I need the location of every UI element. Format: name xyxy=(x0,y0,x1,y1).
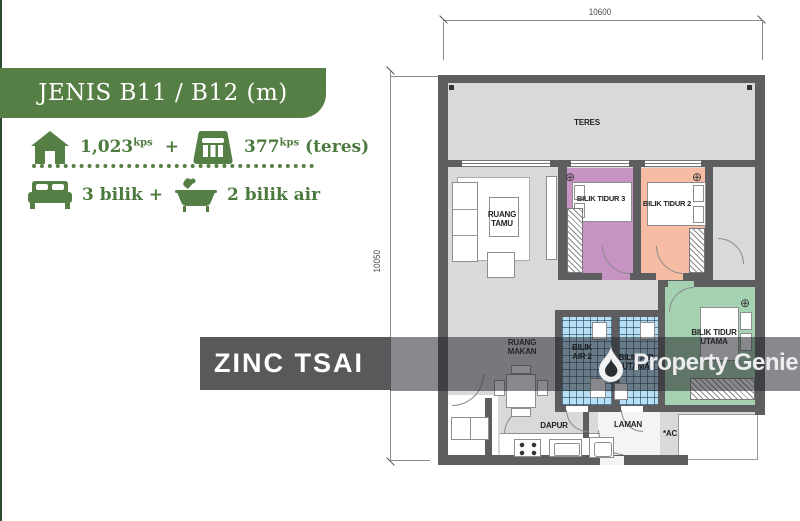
property-genie-watermark: Property Genie xyxy=(390,337,800,391)
ac-ledge xyxy=(678,414,758,460)
window xyxy=(571,160,629,167)
tv-console xyxy=(546,176,557,260)
label-bilik-tidur-2: BILIK TIDUR 2 xyxy=(643,200,691,209)
wall-segment xyxy=(658,405,755,412)
washing-machine xyxy=(589,437,614,458)
label-bilik-tidur-3: BILIK TIDUR 3 xyxy=(577,195,625,204)
store-shelf xyxy=(451,417,489,440)
fan-symbol-icon: ⊕ xyxy=(740,297,750,309)
fan-symbol-icon: ⊕ xyxy=(565,171,575,183)
label-dapur: DAPUR xyxy=(540,421,567,430)
armchair xyxy=(487,252,515,278)
floor-plan: 10600 10050 xyxy=(0,0,800,521)
property-genie-text: Property Genie xyxy=(633,349,798,377)
wall-post xyxy=(747,85,752,90)
label-teres: TERES xyxy=(574,118,600,127)
wall-segment xyxy=(438,75,448,465)
stove xyxy=(514,439,541,457)
wall-segment xyxy=(633,160,641,280)
window xyxy=(645,160,701,167)
page: JENIS B11 / B12 (m) 1,023kps + 377kps (t… xyxy=(0,0,800,521)
fan-symbol-icon: ⊕ xyxy=(692,171,702,183)
dimension-label-top: 10600 xyxy=(589,7,611,18)
zinc-tsai-watermark: ZINC TSAI xyxy=(200,337,390,390)
wall-post xyxy=(449,85,454,90)
dimension-line-top xyxy=(443,20,762,21)
door-gap xyxy=(668,281,694,287)
property-genie-logo-icon xyxy=(597,344,625,384)
wardrobe xyxy=(567,208,583,273)
door-gap xyxy=(602,273,630,280)
label-ac: *AC xyxy=(663,429,677,438)
wardrobe xyxy=(689,228,705,273)
label-ruang-tamu: RUANGTAMU xyxy=(488,210,516,228)
sofa xyxy=(452,182,478,262)
extension-line xyxy=(762,22,763,60)
dining-chair xyxy=(511,408,531,417)
wall-segment xyxy=(555,310,665,317)
extension-line xyxy=(390,76,438,77)
zinc-tsai-text: ZINC TSAI xyxy=(200,348,364,379)
extension-line xyxy=(390,460,430,461)
door-gap xyxy=(656,273,683,280)
wall-segment xyxy=(558,273,713,280)
extension-line xyxy=(443,22,444,60)
label-laman: LAMAN xyxy=(614,420,642,429)
wall-segment xyxy=(438,75,765,83)
kitchen-sink xyxy=(549,439,582,457)
wall-segment xyxy=(705,160,713,280)
pillow xyxy=(693,185,704,202)
dimension-label-left: 10050 xyxy=(372,250,383,272)
window xyxy=(462,160,550,167)
pillow xyxy=(693,206,704,223)
pillow xyxy=(740,312,752,330)
dimension-line-left xyxy=(390,70,391,462)
